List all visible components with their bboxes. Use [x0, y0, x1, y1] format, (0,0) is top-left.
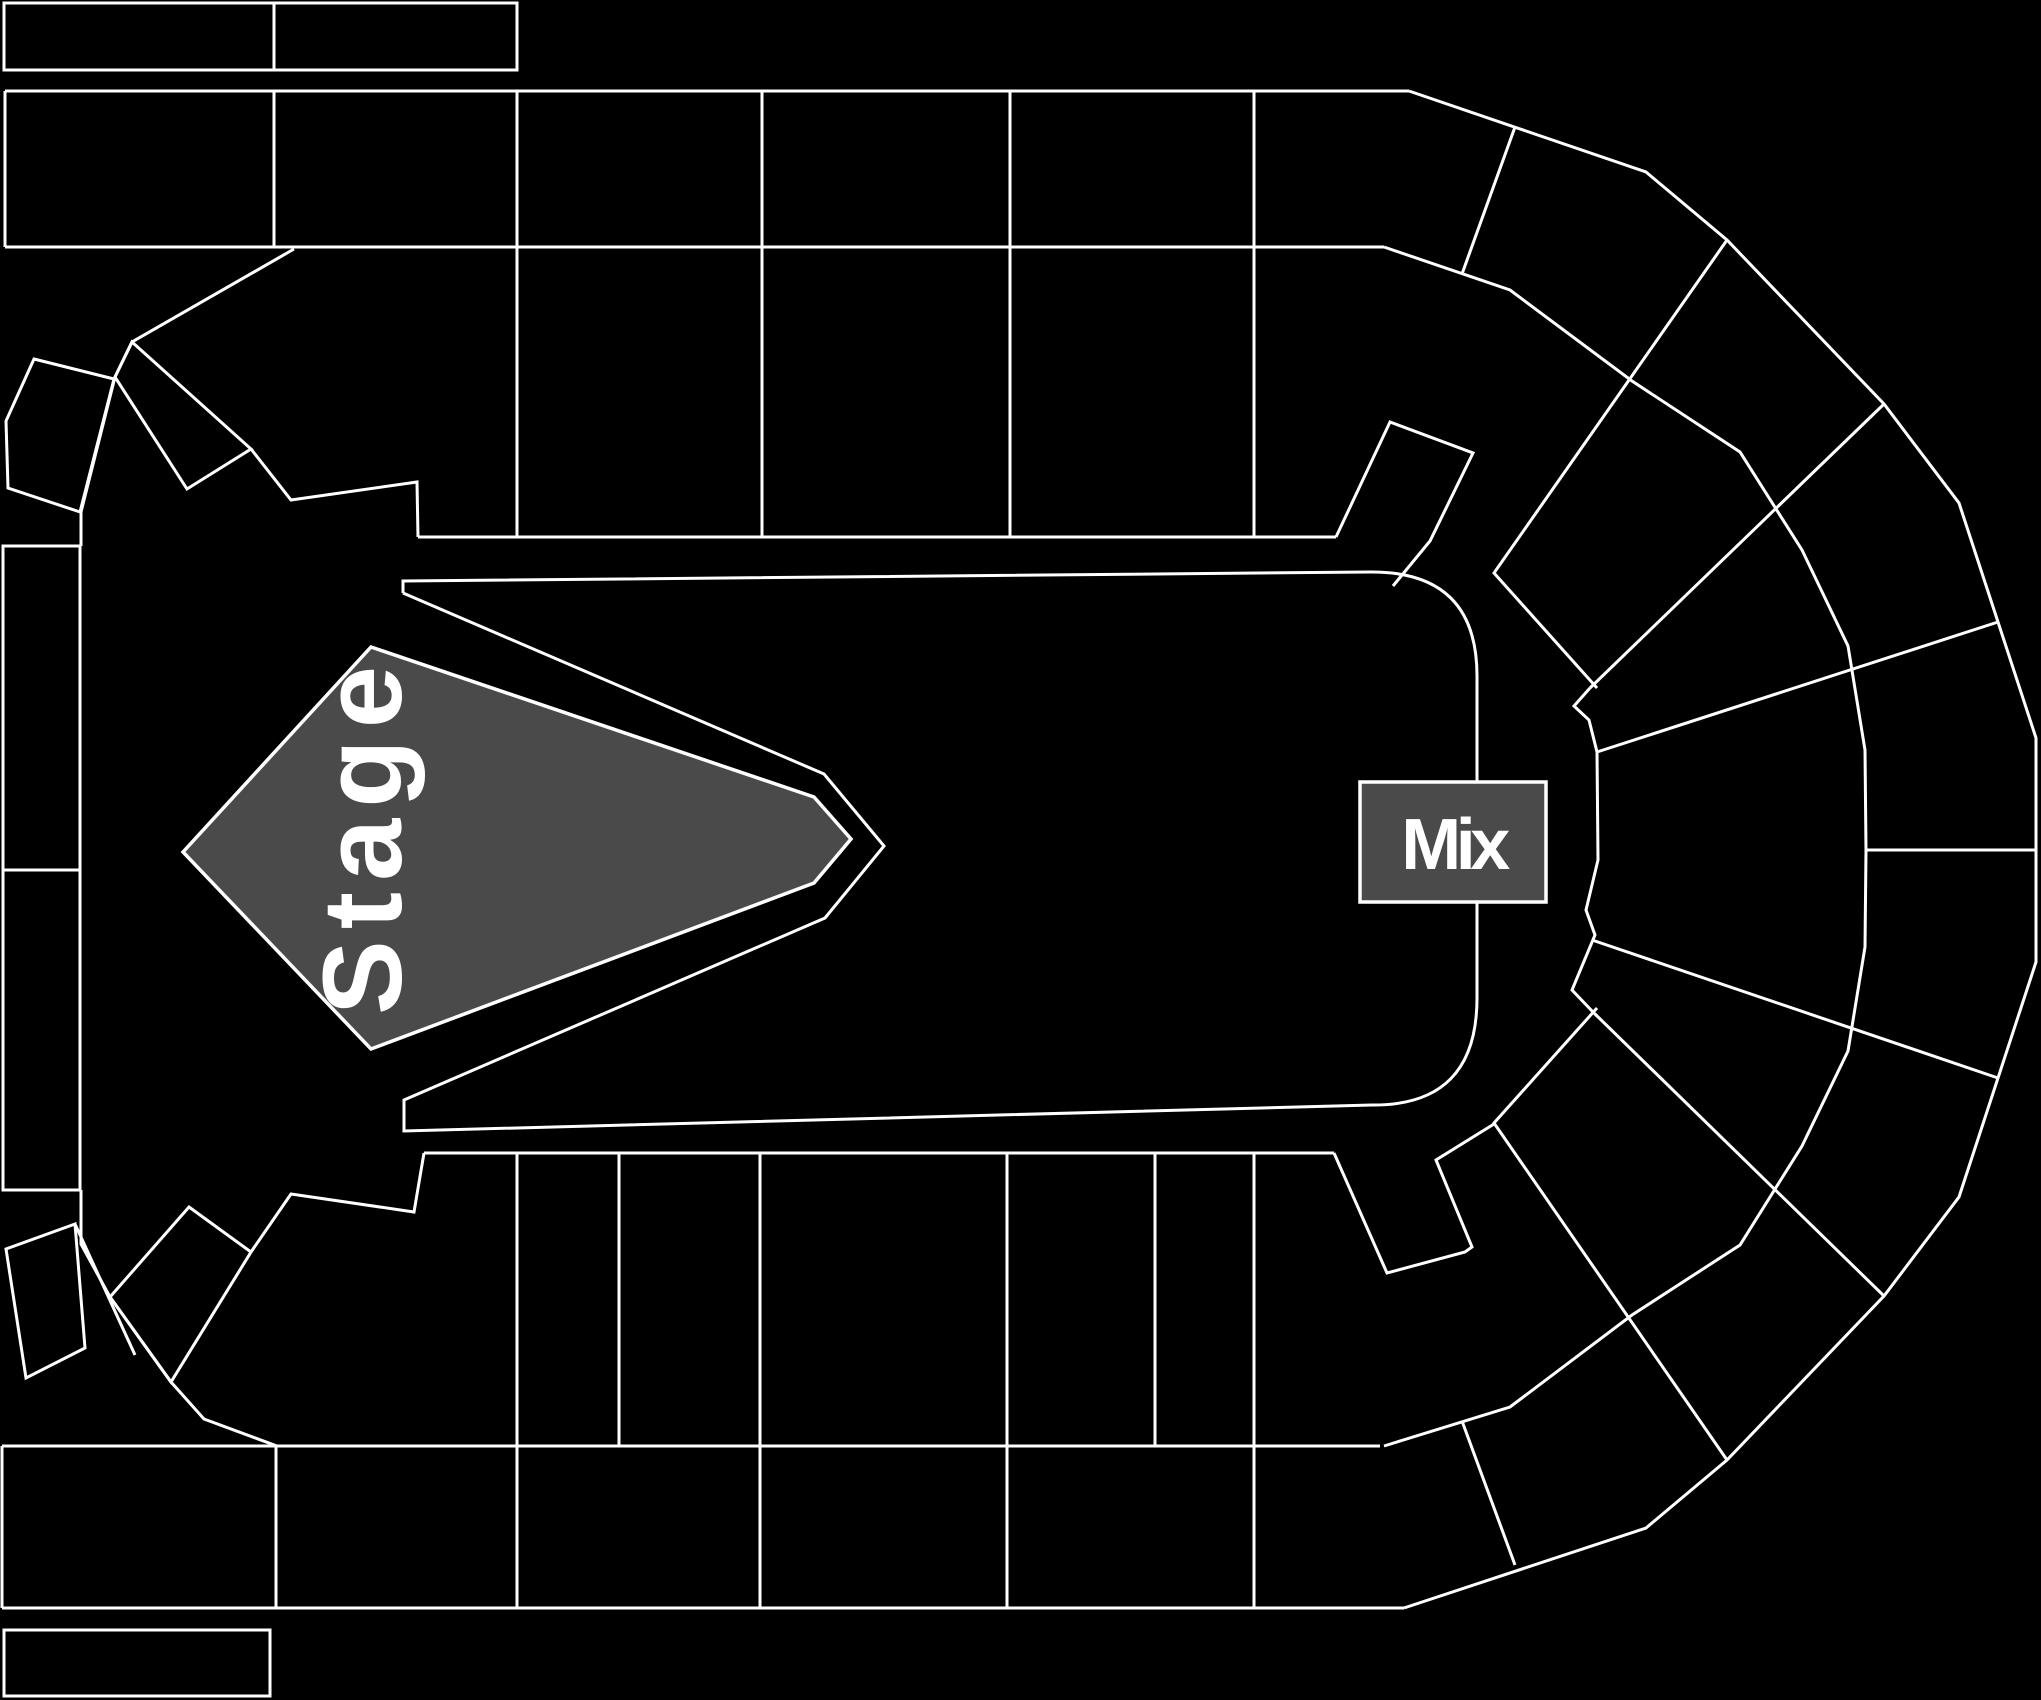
svg-text:Mix: Mix	[1401, 805, 1510, 885]
svg-text:Stage: Stage	[300, 655, 425, 1015]
